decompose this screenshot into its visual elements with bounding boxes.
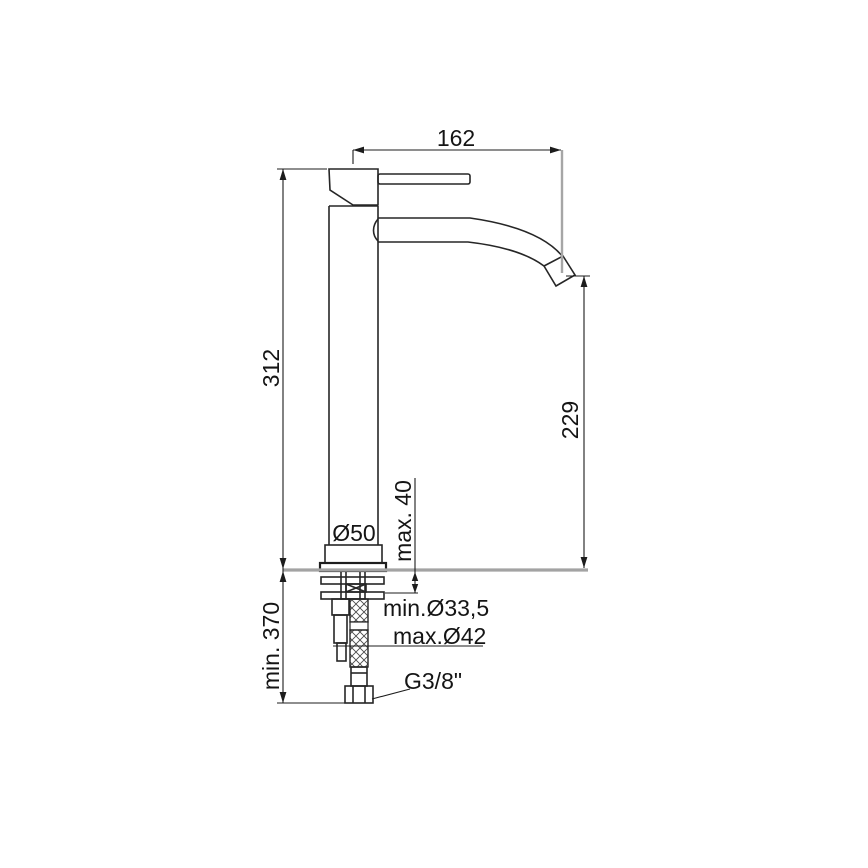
hose-ferrule — [351, 667, 367, 686]
dim-312-arrow-top — [280, 169, 287, 180]
dim-370-arrow-bottom — [280, 692, 287, 703]
label-connection-thread: G3/8" — [404, 668, 462, 694]
locknut — [321, 592, 384, 599]
label-base-diameter: Ø50 — [332, 520, 375, 546]
supply-hose-upper — [350, 599, 368, 622]
supply-hose-lower — [350, 630, 368, 667]
mounting-stud-rod — [334, 615, 347, 643]
label-connection-leader — [372, 689, 410, 699]
dim-max40-arrow-bottom — [412, 584, 418, 593]
dim-outlet-height: 229 — [557, 276, 590, 568]
spout-top-edge — [378, 218, 563, 257]
faucet-lever — [378, 174, 470, 184]
dim-162-arrow-right — [550, 147, 561, 154]
dim-370-arrow-top — [280, 571, 287, 582]
dim-370-label: min. 370 — [258, 602, 284, 690]
dim-max40-label: max. 40 — [390, 480, 416, 562]
label-hole-max: max.Ø42 — [393, 623, 486, 649]
label-hole-min: min.Ø33,5 — [383, 595, 489, 621]
mounting-stud-nut — [332, 599, 349, 615]
dim-162-arrow-left — [353, 147, 364, 154]
dim-229-arrow-bottom — [581, 557, 588, 568]
dim-deck-thickness: max. 40 — [385, 478, 418, 593]
dim-229-label: 229 — [557, 401, 583, 439]
dim-left-column: 312 min. 370 — [258, 169, 345, 703]
spout-nozzle — [544, 256, 575, 286]
dim-229-arrow-top — [581, 276, 588, 287]
dim-162-label: 162 — [437, 125, 475, 151]
dim-312-label: 312 — [258, 349, 284, 387]
dim-312-arrow-bottom — [280, 558, 287, 569]
dim-spout-reach: 162 — [353, 125, 562, 273]
spout-bottom-edge — [378, 242, 544, 266]
under-counter-assembly — [321, 571, 384, 703]
faucet-outline — [320, 169, 575, 571]
drawing-canvas: 162 312 min. 370 229 ma — [0, 0, 868, 868]
supply-hose-gap — [350, 622, 368, 630]
dim-max40-arrow-top — [412, 572, 418, 581]
faucet-handle-cap — [329, 169, 378, 205]
washer — [321, 577, 384, 584]
base-flange — [325, 545, 382, 563]
hose-end-nut — [345, 686, 373, 703]
technical-drawing-svg: 162 312 min. 370 229 ma — [0, 0, 868, 868]
